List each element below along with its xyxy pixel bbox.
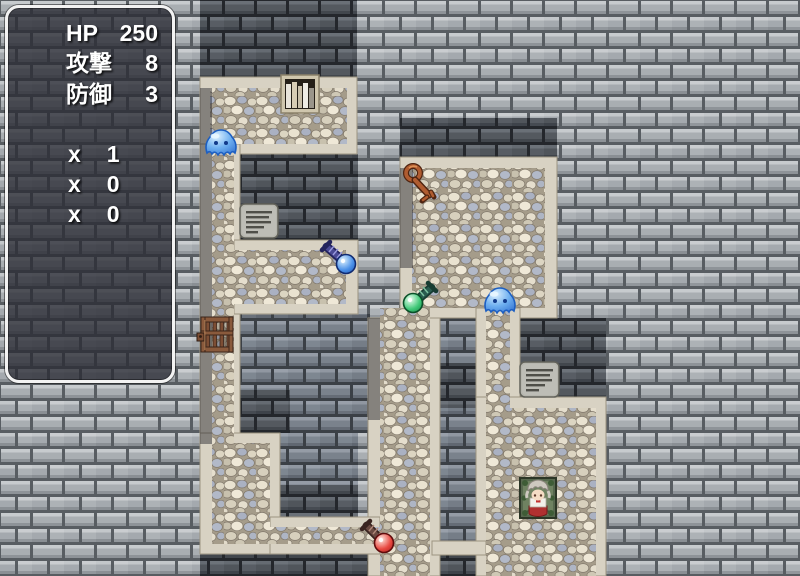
hp-label: HP xyxy=(66,20,98,46)
attack-value: 8 xyxy=(145,50,158,76)
floor-short-corridor xyxy=(486,308,510,408)
stone-sign-2[interactable] xyxy=(520,362,559,397)
item-count-row-1: x 1 xyxy=(68,141,120,167)
defense-label: 防御 xyxy=(66,81,112,107)
status-panel: HP 250 攻撃 8 防御 3 x 1 x 0 x 0 xyxy=(5,5,175,383)
hp-row: HP 250 xyxy=(66,20,158,46)
item-1-count: 1 xyxy=(107,141,120,167)
item-2-label: x xyxy=(68,171,81,197)
hp-value: 250 xyxy=(120,20,158,46)
game-screen: HP 250 攻撃 8 防御 3 x 1 x 0 x 0 xyxy=(0,0,800,576)
bookshelf[interactable] xyxy=(281,75,319,113)
item-3-count: 0 xyxy=(107,201,120,227)
item-3-label: x xyxy=(68,201,81,227)
item-1-label: x xyxy=(68,141,81,167)
attack-row: 攻撃 8 xyxy=(66,50,158,76)
jail-gate[interactable] xyxy=(197,317,233,352)
item-2-count: 0 xyxy=(107,171,120,197)
item-count-row-2: x 0 xyxy=(68,171,120,197)
defense-value: 3 xyxy=(145,81,158,107)
floor-bottomleft-room xyxy=(212,443,270,544)
attack-label: 攻撃 xyxy=(66,50,112,76)
item-count-row-3: x 0 xyxy=(68,201,120,227)
defense-row: 防御 3 xyxy=(66,81,158,107)
stone-sign-1[interactable] xyxy=(240,204,278,238)
floor-middle-room xyxy=(212,250,346,304)
character[interactable] xyxy=(527,480,550,517)
